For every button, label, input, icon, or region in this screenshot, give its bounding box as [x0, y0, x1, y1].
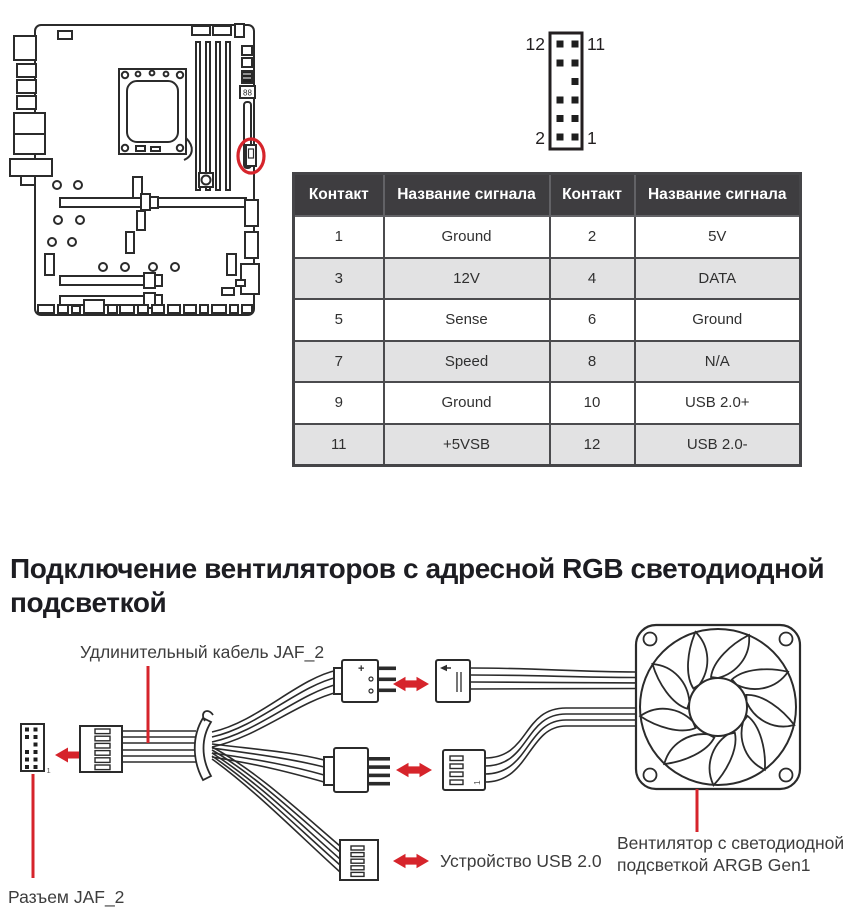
- table-row: 3 12V 4 DATA: [294, 258, 801, 300]
- signal-cell: Ground: [635, 299, 801, 341]
- pin-cell: 3: [294, 258, 384, 300]
- header-cell: Контакт: [294, 174, 384, 217]
- signal-cell: 5V: [635, 216, 801, 258]
- signal-cell: Sense: [384, 299, 550, 341]
- jaf2-header: 1: [21, 724, 51, 775]
- fan-label-line-2: подсветкой ARGB Gen1: [617, 855, 811, 875]
- pin-cell: 5: [294, 299, 384, 341]
- signal-cell: Ground: [384, 216, 550, 258]
- pinout-table: Контакт Название сигнала Контакт Названи…: [292, 172, 802, 467]
- pin-cell: 6: [550, 299, 635, 341]
- table-row: 7 Speed 8 N/A: [294, 341, 801, 383]
- signal-cell: 12V: [384, 258, 550, 300]
- extension-cable-plug: [80, 726, 122, 772]
- double-arrow-icon: [393, 854, 429, 868]
- motherboard-diagram: 88: [8, 12, 273, 322]
- argb-4pin-connector: [324, 748, 390, 792]
- argb-3pin-connector: [334, 660, 396, 702]
- header-cell: Контакт: [550, 174, 635, 217]
- signal-cell: USB 2.0-: [635, 424, 801, 466]
- header-cell: Название сигнала: [635, 174, 801, 217]
- manual-page: 88 12 11 2 1 Контакт Назв: [0, 0, 846, 914]
- table-header-row: Контакт Название сигнала Контакт Названи…: [294, 174, 801, 217]
- table-row: 11 +5VSB 12 USB 2.0-: [294, 424, 801, 466]
- debug-led-label: 88: [243, 89, 252, 98]
- header-pin1-label: 1: [47, 766, 51, 775]
- pin-label-12: 12: [526, 34, 545, 54]
- signal-cell: N/A: [635, 341, 801, 383]
- pin-cell: 10: [550, 382, 635, 424]
- table-row: 9 Ground 10 USB 2.0+: [294, 382, 801, 424]
- cable-tie: [195, 711, 213, 780]
- left-arrow-icon: [55, 748, 79, 763]
- extension-cable-label: Удлинительный кабель JAF_2: [80, 642, 324, 663]
- pin-cell: 7: [294, 341, 384, 383]
- section-heading: Подключение вентиляторов с адресной RGB …: [10, 552, 840, 620]
- double-arrow-icon: [396, 763, 432, 777]
- pin-cell: 11: [294, 424, 384, 466]
- fan-icon: [636, 625, 800, 789]
- double-arrow-icon: [393, 677, 429, 691]
- heading-line-1: Подключение вентиляторов с адресной RGB …: [10, 552, 840, 586]
- pin-cell: 2: [550, 216, 635, 258]
- signal-cell: Speed: [384, 341, 550, 383]
- signal-cell: USB 2.0+: [635, 382, 801, 424]
- pin-cell: 4: [550, 258, 635, 300]
- usb-5pin-connector: [340, 840, 378, 880]
- pin-cell: 1: [294, 216, 384, 258]
- table-row: 5 Sense 6 Ground: [294, 299, 801, 341]
- usb-device-label: Устройство USB 2.0: [440, 851, 602, 871]
- fan-label-line-1: Вентилятор с светодиодной: [617, 833, 844, 853]
- cpu-socket: [119, 69, 192, 160]
- table-row: 1 Ground 2 5V: [294, 216, 801, 258]
- signal-cell: DATA: [635, 258, 801, 300]
- pin-cell: 9: [294, 382, 384, 424]
- signal-cell: +5VSB: [384, 424, 550, 466]
- pin-cell: 12: [550, 424, 635, 466]
- heading-line-2: подсветкой: [10, 586, 840, 620]
- plus-mark: +: [358, 663, 364, 675]
- pin-label-11: 11: [587, 34, 605, 54]
- jaf2-connector-label: Разъем JAF_2: [8, 887, 124, 908]
- signal-cell: Ground: [384, 382, 550, 424]
- header-cell: Название сигнала: [384, 174, 550, 217]
- fan-3pin-connector: [436, 660, 470, 702]
- pin-cell: 8: [550, 341, 635, 383]
- pin-label-1: 1: [587, 128, 597, 148]
- fan-connector-pin1-label: 1: [472, 780, 482, 785]
- argb-cable-diagram: 1 +: [0, 620, 846, 914]
- pin-header-diagram: 12 11 2 1: [500, 25, 650, 160]
- pin-label-2: 2: [535, 128, 545, 148]
